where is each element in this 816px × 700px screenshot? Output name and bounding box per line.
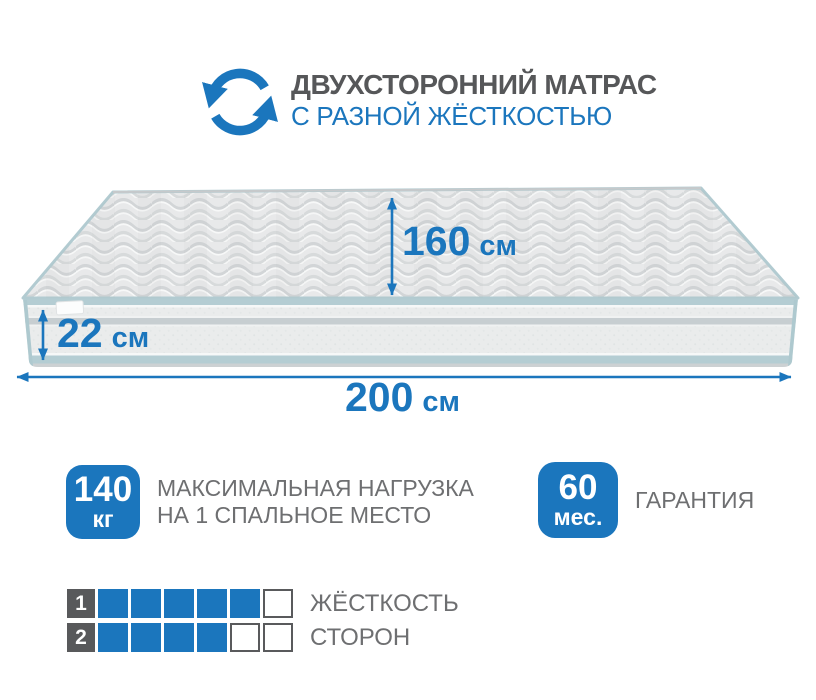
max-load-label-line2: НА 1 СПАЛЬНОЕ МЕСТО	[157, 502, 474, 529]
firmness-row-2: 2 СТОРОН	[67, 623, 459, 652]
firmness-cell-empty	[263, 623, 293, 652]
firmness-cell-filled	[98, 589, 128, 618]
firmness-row-1: 1 ЖЁСТКОСТЬ	[67, 589, 459, 618]
firmness-row-2-cells	[98, 623, 293, 652]
warranty-unit: мес.	[538, 505, 618, 529]
firmness-cell-filled	[197, 589, 227, 618]
firmness-cell-filled	[164, 623, 194, 652]
firmness-row-1-label: ЖЁСТКОСТЬ	[310, 590, 459, 618]
firmness-row-1-number: 1	[67, 589, 95, 618]
firmness-cell-empty	[230, 623, 260, 652]
warranty-badge: 60 мес.	[538, 462, 618, 538]
warranty-feature: 60 мес. ГАРАНТИЯ	[538, 462, 754, 538]
length-dimension-label: 160см	[402, 223, 517, 269]
max-load-feature: 140 кг МАКСИМАЛЬНАЯ НАГРУЗКА НА 1 СПАЛЬН…	[66, 465, 474, 539]
height-unit: см	[112, 322, 150, 354]
height-value: 22	[57, 310, 103, 356]
firmness-cell-filled	[164, 589, 194, 618]
firmness-row-2-label: СТОРОН	[310, 624, 410, 652]
warranty-value: 60	[538, 471, 618, 505]
mattress-infographic: ДВУХСТОРОННИЙ МАТРАС С РАЗНОЙ ЖЁСТКОСТЬЮ	[0, 0, 816, 700]
firmness-cell-empty	[263, 589, 293, 618]
max-load-unit: кг	[66, 507, 140, 531]
max-load-label: МАКСИМАЛЬНАЯ НАГРУЗКА НА 1 СПАЛЬНОЕ МЕСТ…	[157, 475, 474, 529]
firmness-cell-filled	[131, 589, 161, 618]
length-value: 160	[402, 218, 470, 264]
firmness-row-1-cells	[98, 589, 293, 618]
height-dimension-label: 22см	[57, 315, 149, 361]
firmness-cell-filled	[131, 623, 161, 652]
max-load-label-line1: МАКСИМАЛЬНАЯ НАГРУЗКА	[157, 475, 474, 502]
width-unit: см	[422, 386, 460, 418]
firmness-cell-filled	[230, 589, 260, 618]
firmness-scale: 1 ЖЁСТКОСТЬ 2 СТОРОН	[67, 589, 459, 652]
width-dimension-label: 200см	[345, 379, 460, 425]
max-load-value: 140	[66, 473, 140, 507]
firmness-row-2-number: 2	[67, 623, 95, 652]
warranty-label: ГАРАНТИЯ	[635, 487, 754, 514]
firmness-cell-filled	[197, 623, 227, 652]
firmness-cell-filled	[98, 623, 128, 652]
length-unit: см	[479, 230, 517, 262]
max-load-badge: 140 кг	[66, 465, 140, 539]
width-value: 200	[345, 374, 413, 420]
